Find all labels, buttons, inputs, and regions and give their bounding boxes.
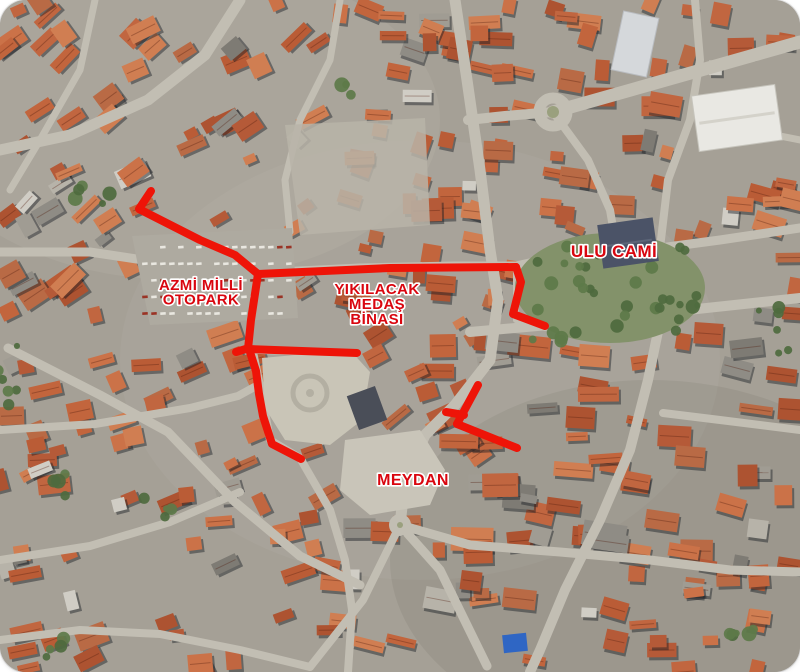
label-azmi-milli-otopark-line2: OTOPARK — [163, 292, 239, 309]
route-bottom-horizontal — [248, 349, 357, 353]
annotated-satellite-screenshot: AZMİ MİLLİOTOPARKYIKILACAKMEDAŞBİNASIULU… — [0, 0, 800, 672]
map-frame: AZMİ MİLLİOTOPARKYIKILACAKMEDAŞBİNASIULU… — [0, 0, 800, 672]
label-ulu-cami: ULU CAMİ — [571, 242, 657, 261]
label-yikilacak-medas-binasi-line3: BİNASI — [350, 311, 403, 328]
route-v-stub — [446, 412, 464, 415]
satellite-map: AZMİ MİLLİOTOPARKYIKILACAKMEDAŞBİNASIULU… — [0, 0, 800, 672]
label-meydan: MEYDAN — [377, 472, 449, 489]
